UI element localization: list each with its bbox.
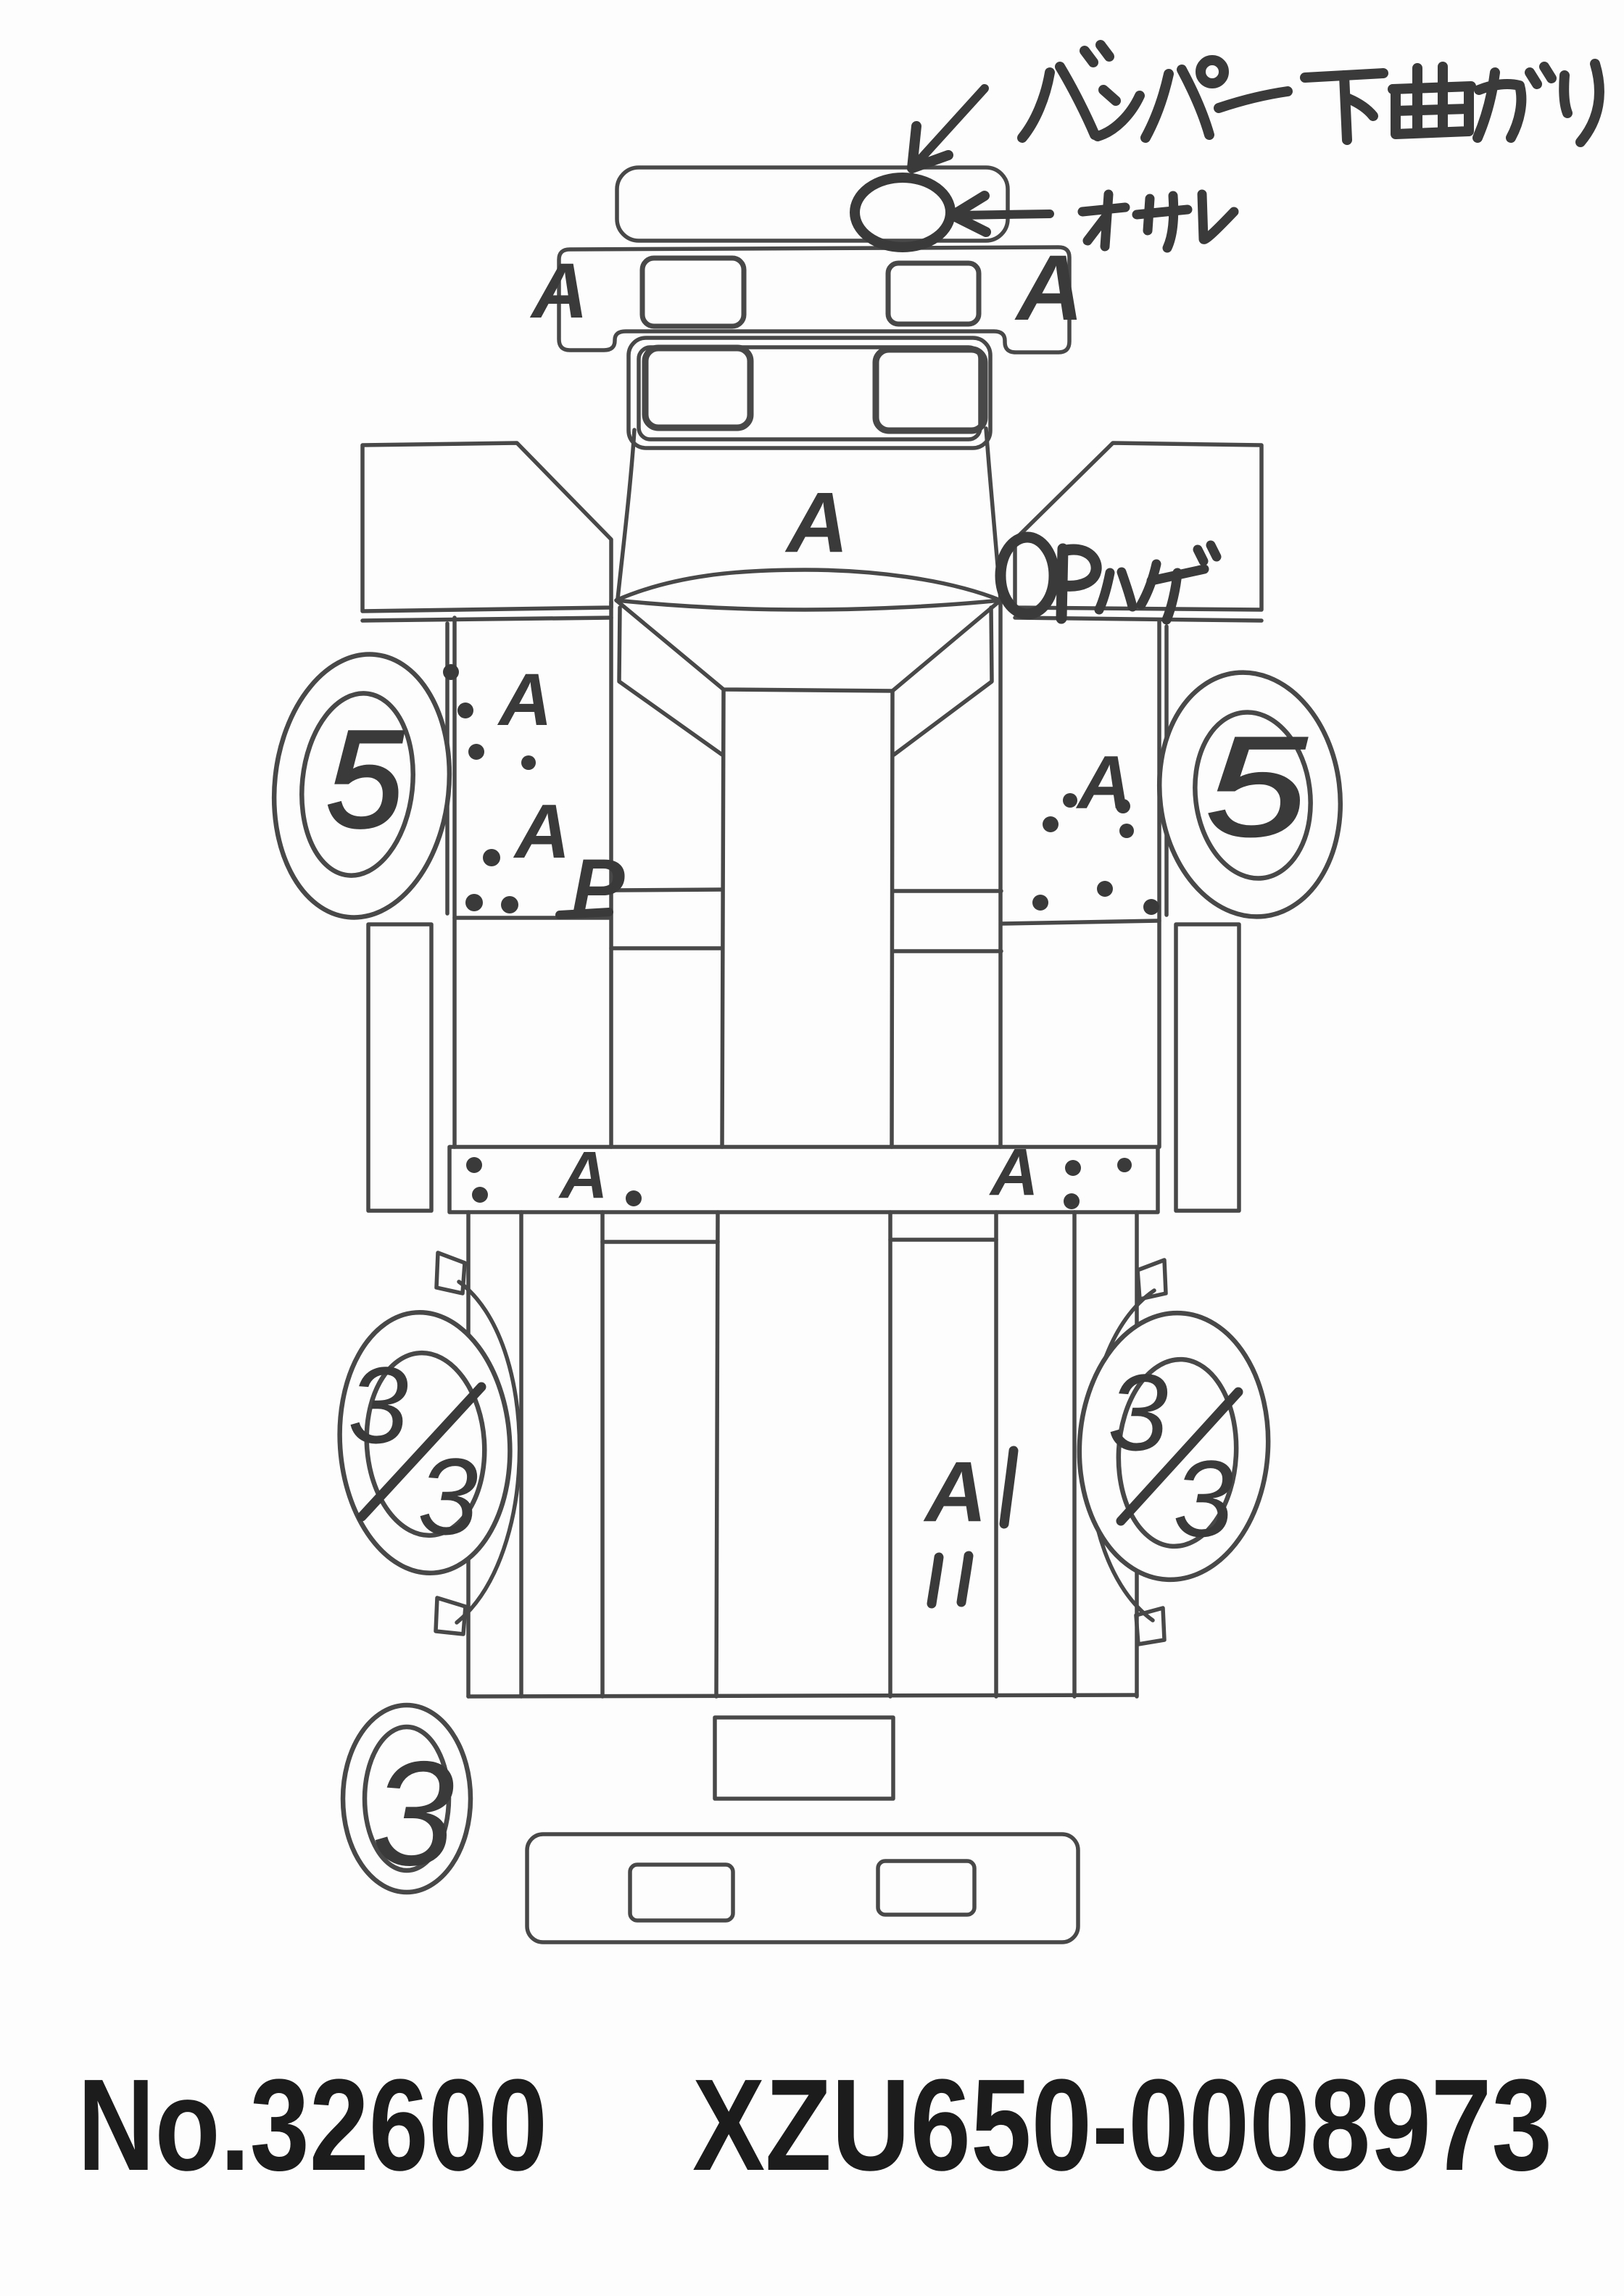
svg-text:3: 3 xyxy=(372,1731,455,1897)
svg-text:A: A xyxy=(497,658,552,741)
svg-text:3: 3 xyxy=(348,1344,408,1466)
svg-text:A: A xyxy=(923,1444,987,1540)
svg-text:A: A xyxy=(513,789,571,874)
svg-text:XZU650-0008973: XZU650-0008973 xyxy=(692,2052,1552,2198)
svg-text:A: A xyxy=(558,1138,608,1212)
svg-text:No.32600: No.32600 xyxy=(78,2052,547,2198)
svg-text:A: A xyxy=(989,1135,1038,1209)
svg-text:3: 3 xyxy=(1108,1351,1168,1473)
svg-text:A: A xyxy=(1014,236,1083,340)
svg-text:A: A xyxy=(784,475,848,571)
svg-text:P: P xyxy=(571,843,625,932)
svg-text:5: 5 xyxy=(326,703,404,856)
svg-text:A: A xyxy=(529,246,588,334)
svg-text:3: 3 xyxy=(418,1435,478,1557)
svg-text:5: 5 xyxy=(1206,708,1307,866)
svg-text:A: A xyxy=(1075,741,1132,825)
